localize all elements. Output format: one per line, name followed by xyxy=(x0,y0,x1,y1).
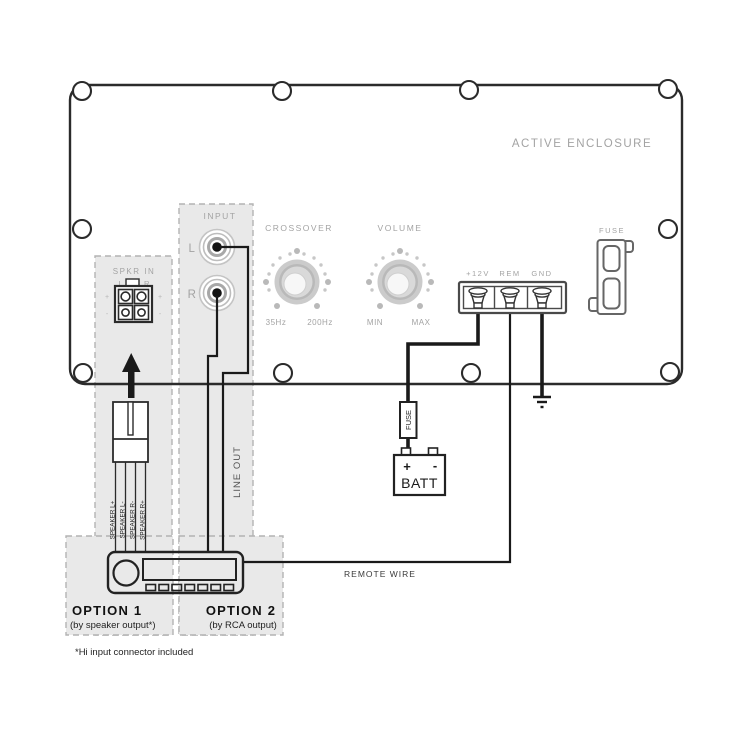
option1-subtitle: (by speaker output*) xyxy=(70,620,156,631)
screw-icon xyxy=(462,364,480,382)
line-out-label: LINE OUT xyxy=(232,446,243,498)
battery-label: BATT xyxy=(401,475,438,491)
terminal-rem-label: REM xyxy=(499,269,520,278)
speaker-wire-label: SPEAKER L+ xyxy=(110,500,117,539)
footnote: *Hi input connector included xyxy=(75,647,193,658)
spkr-in-label: SPKR IN xyxy=(113,267,156,276)
speaker-wire-label: SPEAKER R- xyxy=(130,501,137,539)
screw-icon xyxy=(74,364,92,382)
ground-icon xyxy=(533,397,551,407)
volume-label: VOLUME xyxy=(378,223,423,233)
panel-fuse-holder: FUSE xyxy=(589,226,633,314)
screw-icon xyxy=(460,81,478,99)
hi-input-connector xyxy=(113,402,148,462)
svg-text:+: + xyxy=(158,294,162,301)
option2-subtitle: (by RCA output) xyxy=(209,620,277,631)
crossover-min-label: 35Hz xyxy=(266,318,287,327)
battery-minus-label: - xyxy=(433,458,437,473)
screw-icon xyxy=(659,220,677,238)
option2-region xyxy=(179,204,283,635)
screw-terminals xyxy=(469,288,551,308)
crossover-max-label: 200Hz xyxy=(307,318,333,327)
plus12v-wire xyxy=(408,300,478,404)
power-terminal-block: +12V REM GND xyxy=(459,269,566,313)
terminal-12v-label: +12V xyxy=(466,269,490,278)
remote-wire-label: REMOTE WIRE xyxy=(344,569,416,579)
speaker-wire-label: SPEAKER L- xyxy=(120,501,127,538)
option2-title: OPTION 2 xyxy=(206,603,276,618)
battery-plus-label: + xyxy=(403,459,411,474)
screw-icon xyxy=(661,363,679,381)
crossover-label: CROSSOVER xyxy=(265,223,333,233)
panel-title: ACTIVE ENCLOSURE xyxy=(512,138,652,150)
wiring-diagram: ACTIVE ENCLOSURE SPKR IN L R xyxy=(0,0,750,738)
screw-icon xyxy=(273,82,291,100)
terminal-gnd-label: GND xyxy=(531,269,552,278)
panel-fuse-label: FUSE xyxy=(599,226,625,235)
power-wiring xyxy=(243,300,542,562)
wiring-diagram-page: ACTIVE ENCLOSURE SPKR IN L R xyxy=(0,0,750,738)
remote-wire xyxy=(243,300,510,562)
speaker-wire-label: SPEAKER R+ xyxy=(140,500,147,540)
screw-icon xyxy=(73,82,91,100)
screw-icon xyxy=(274,364,292,382)
inline-fuse: FUSE xyxy=(400,402,417,438)
crossover-knob: CROSSOVER 35Hz 200Hz xyxy=(263,223,333,327)
volume-knob: VOLUME MIN MAX xyxy=(366,223,434,327)
volume-min-label: MIN xyxy=(367,318,383,327)
volume-max-label: MAX xyxy=(412,318,431,327)
input-label: INPUT xyxy=(204,211,237,221)
inline-fuse-label: FUSE xyxy=(404,410,413,430)
battery: + - BATT xyxy=(394,448,445,495)
svg-text:+: + xyxy=(105,294,109,301)
option1-title: OPTION 1 xyxy=(72,603,142,618)
input-right-label: R xyxy=(188,289,197,301)
input-left-label: L xyxy=(189,243,196,255)
screw-icon xyxy=(659,80,677,98)
screw-icon xyxy=(73,220,91,238)
